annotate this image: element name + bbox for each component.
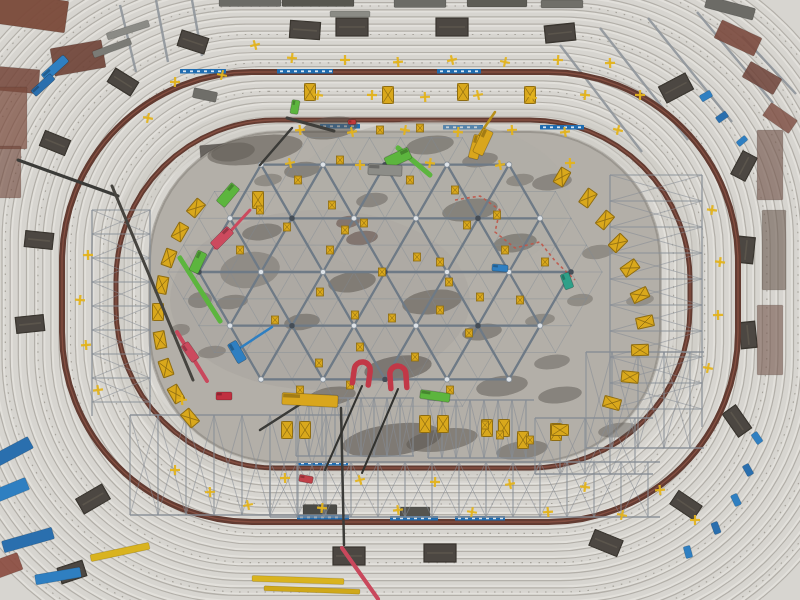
vomitory-opening [544,23,576,43]
shoring-frame [257,206,264,214]
yellow-tower [420,416,431,433]
shoring-frame [497,431,504,439]
shoring-frame [342,226,349,234]
shoring-frame [466,329,473,337]
shoring-frame [379,268,386,276]
shoring-frame [447,386,454,394]
shoring-frame [437,306,444,314]
vomitory-opening [436,18,468,36]
stadium-aerial-svg [0,0,800,600]
shoring-frame [502,246,509,254]
shoring-frame [284,223,291,231]
shoring-frame [417,124,424,132]
yellow-tower [458,84,469,101]
shoring-frame [327,246,334,254]
yellow-tower [300,422,311,439]
shoring-frame [295,176,302,184]
shoring-frame [446,278,453,286]
shoring-frame [272,316,279,324]
machine [368,164,403,177]
yellow-tower [305,84,316,101]
shoring-frame [482,421,489,429]
yellow-tower [438,416,449,433]
shoring-frame [464,221,471,229]
vomitory-opening [24,231,54,250]
machine [216,392,232,400]
shoring-frame [452,186,459,194]
yellow-tower [153,331,167,350]
shoring-frame [494,211,501,219]
shoring-frame [317,288,324,296]
shoring-frame [407,176,414,184]
shoring-frame [352,311,359,319]
vomitory-opening [289,20,320,39]
shoring-frame [389,314,396,322]
shoring-frame [412,353,419,361]
vomitory-opening [336,18,368,36]
shoring-frame [377,126,384,134]
shoring-frame [357,343,364,351]
shoring-frame [329,201,336,209]
yellow-tower [552,425,569,436]
yellow-tower [383,87,394,104]
yellow-tower [621,371,639,384]
shoring-frame [517,296,524,304]
shoring-frame [414,253,421,261]
shoring-frame [297,386,304,394]
yellow-tower [631,344,648,356]
vomitory-opening [15,315,45,334]
shoring-frame [527,436,534,444]
vomitory-opening [424,544,456,562]
yellow-tower [282,422,293,439]
shoring-frame [542,258,549,266]
shoring-frame [361,219,368,227]
shoring-frame [477,293,484,301]
machine [282,393,339,408]
machine [492,264,509,272]
shoring-frame [337,156,344,164]
shoring-frame [316,359,323,367]
stadium-aerial-photo [0,0,800,600]
shoring-frame [237,246,244,254]
vomitory-opening [739,321,758,349]
shoring-frame [437,258,444,266]
machine [348,120,356,125]
